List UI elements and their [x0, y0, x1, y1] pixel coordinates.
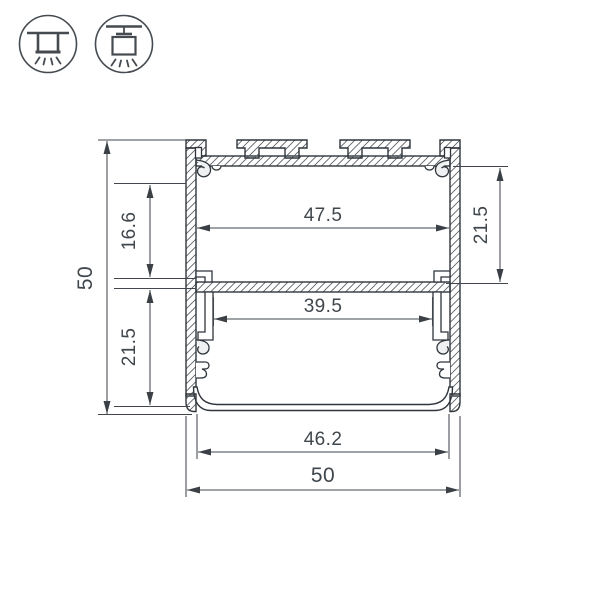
dim-overall-width-value: 50	[311, 464, 335, 487]
arrowhead-down	[104, 401, 111, 414]
arrowhead-down	[497, 269, 504, 282]
arrowhead-left	[214, 316, 227, 323]
arrowhead-up	[147, 185, 154, 198]
corner-groove	[196, 148, 202, 159]
left-side-details	[196, 148, 222, 379]
arrowhead-right	[436, 225, 449, 232]
left-foot	[186, 394, 196, 412]
dim-diffuser-width: 46.2	[197, 414, 449, 459]
arrowhead-up	[147, 290, 154, 303]
dim-middle-inner-width-value: 39.5	[304, 296, 343, 317]
icon-circle	[20, 16, 77, 73]
mount-icons	[20, 16, 153, 73]
dim-middle-inner-width: 39.5	[214, 296, 433, 326]
middle-shelf	[196, 282, 450, 292]
arrowhead-right	[419, 316, 432, 323]
dim-diffuser-width-value: 46.2	[304, 429, 343, 450]
diffuser	[194, 387, 453, 411]
arrowhead-right	[446, 487, 459, 494]
extension-lines	[98, 140, 192, 415]
technical-drawing-page: 50 16.6 21.5 21.5 47.5	[0, 0, 600, 600]
right-side-details	[425, 148, 451, 379]
dim-lower-cavity-height-value: 21.5	[119, 328, 140, 367]
dim-upper-inner-width-value: 47.5	[304, 205, 343, 226]
top-ceiling-band	[196, 156, 450, 166]
light-rays	[36, 58, 61, 65]
shelf-hook-lower	[198, 292, 213, 340]
dim-overall-height: 50	[74, 140, 192, 415]
dim-lower-cavity-height: 21.5	[114, 289, 196, 407]
arrowhead-down	[147, 392, 154, 405]
left-wall	[186, 148, 196, 396]
dim-right-upper-cavity-height-value: 21.5	[471, 206, 492, 245]
profile-cross-section-drawing: 50 16.6 21.5 21.5 47.5	[0, 0, 600, 600]
fixture-sides	[38, 33, 58, 52]
wall-rib	[196, 362, 209, 378]
arrowhead-left	[198, 449, 211, 456]
profile-body	[186, 140, 460, 412]
arrowhead-right	[435, 449, 448, 456]
dimensions: 50 16.6 21.5 21.5 47.5	[74, 140, 508, 497]
dim-upper-inner-width: 47.5	[197, 205, 449, 232]
dim-overall-height-value: 50	[74, 266, 97, 290]
ceiling-notch	[212, 166, 221, 170]
screw-boss-bottom	[196, 340, 209, 354]
dim-upper-cavity-height-value: 16.6	[119, 212, 140, 251]
arrowhead-left	[197, 225, 210, 232]
dim-upper-cavity-height: 16.6	[114, 184, 196, 279]
arrowhead-up	[497, 168, 504, 181]
light-rays	[112, 60, 137, 67]
pendant-mount-icon	[96, 16, 153, 73]
right-foot	[450, 394, 460, 412]
arrowhead-down	[147, 264, 154, 277]
icon-circle	[96, 16, 153, 73]
shelf-clip-upper	[196, 271, 212, 282]
fixture-box	[113, 37, 136, 55]
surface-mount-icon	[20, 16, 77, 73]
arrowhead-left	[187, 487, 200, 494]
arrowhead-up	[104, 141, 111, 154]
right-wall	[450, 148, 460, 396]
